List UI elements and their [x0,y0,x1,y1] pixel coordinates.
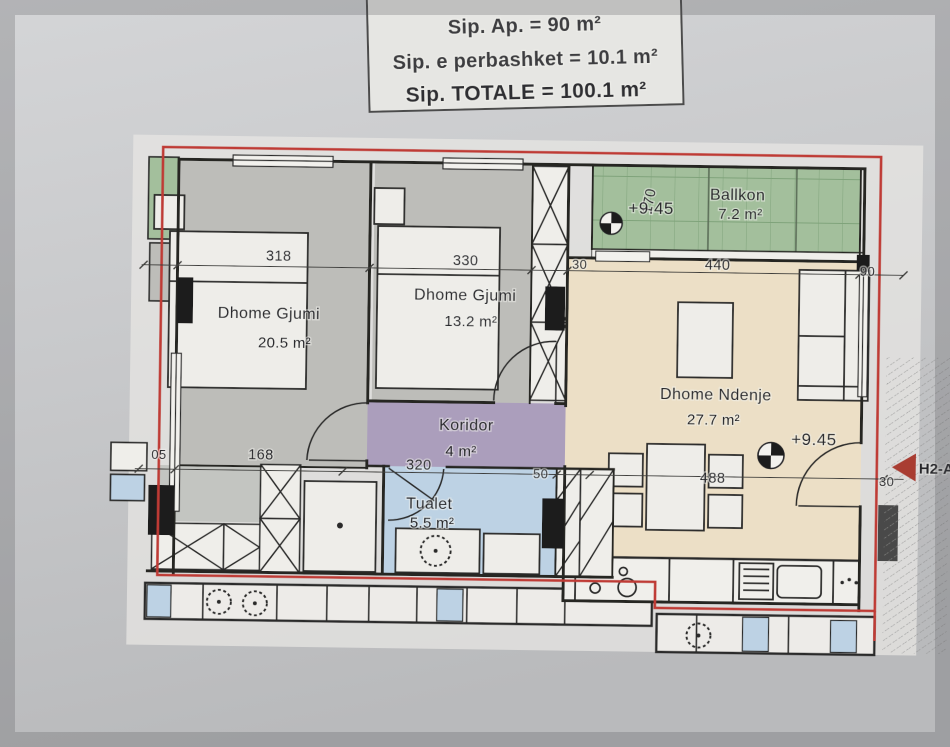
neighbour-blue-box [110,474,144,500]
bedroom-1-label: Dhome Gjumi [218,305,320,323]
balcony-area: 7.2 m² [718,206,763,224]
corridor-area: 4 m² [445,443,476,460]
dim-50: 50 [533,466,548,481]
washing-machine [303,481,376,572]
dim-488: 488 [700,471,726,487]
dim-330: 330 [453,253,479,269]
corridor-label: Koridor [439,417,494,435]
dim-320: 320 [406,457,432,473]
dim-90: 90 [860,264,875,279]
title-block: Sip. Ap. = 90 m² Sip. e perbashket = 10.… [366,0,683,112]
coffee-table [677,302,733,378]
floor-plan-photo: Sip. Ap. = 90 m² Sip. e perbashket = 10.… [0,0,950,747]
living-room-label: Dhome Ndenje [660,386,772,405]
neighbour-band-right [656,614,875,655]
balcony-door-threshold [596,251,650,262]
bedroom-1-window [233,155,333,167]
bedroom-2-label: Dhome Gjumi [414,287,516,305]
living-room-window [858,275,869,397]
floor-plan-drawing: H2-A 318 330 30 440 90 05 168 [108,134,950,656]
dim-168: 168 [248,447,274,463]
elevation-marker-living-icon [758,442,784,468]
dim-440: 440 [705,258,731,274]
toilet-area: 5.5 m² [410,514,455,532]
bedroom-2-window [443,158,523,170]
floor-plan-canvas: Sip. Ap. = 90 m² Sip. e perbashket = 10.… [0,0,950,747]
title-line-apartment-area: Sip. Ap. = 90 m² [448,13,602,39]
elevation-value-living: +9.45 [791,430,837,450]
bedroom-1-area: 20.5 m² [258,334,311,352]
toilet-fixtures [395,528,540,574]
dining-set [608,443,743,531]
balcony-label: Ballkon [710,187,766,205]
dim-318: 318 [266,248,292,264]
elevation-marker-balcony-icon [600,212,622,234]
toilet-label: Tualet [406,495,453,513]
dim-05: 05 [151,447,166,462]
dim-30-bottom: 30 [879,474,894,489]
elevation-value-balcony: +9.45 [628,198,674,218]
dim-30-top: 30 [572,257,587,272]
living-room-area: 27.7 m² [687,411,740,429]
bedroom-2-area: 13.2 m² [444,313,497,331]
wardrobe-column [530,166,569,400]
